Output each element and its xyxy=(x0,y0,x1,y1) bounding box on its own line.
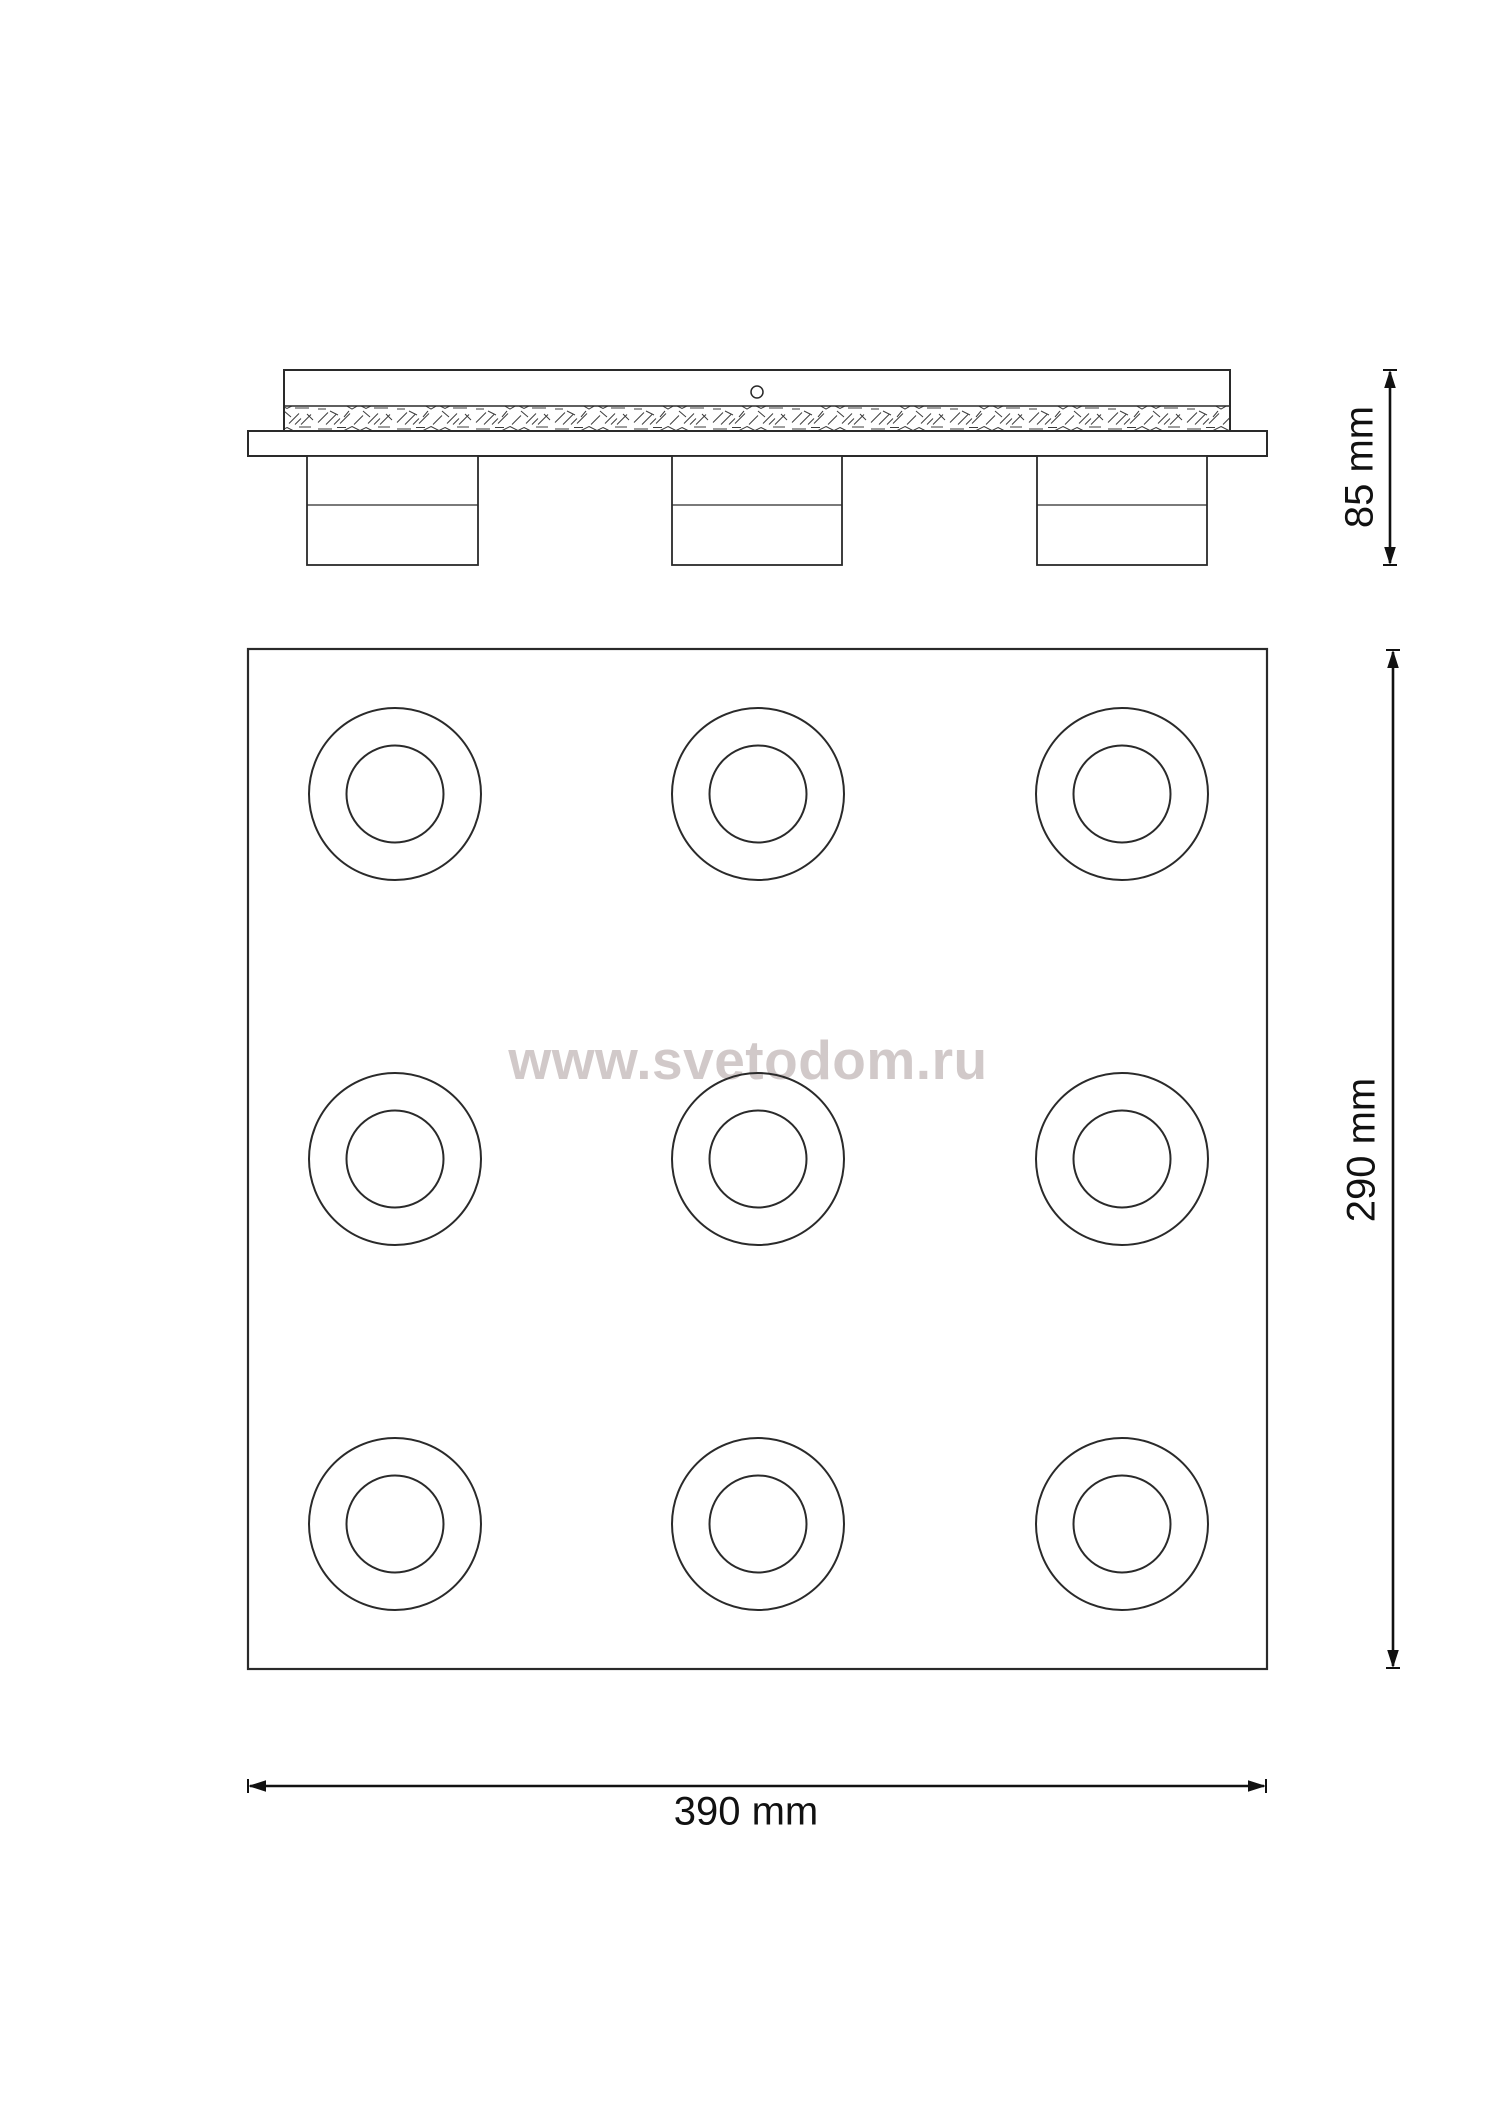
height-dimension-line xyxy=(1383,370,1397,565)
side-view xyxy=(248,370,1267,565)
lamp-ring xyxy=(672,1073,844,1245)
lamp-ring xyxy=(309,1073,481,1245)
spot-cylinder xyxy=(672,456,842,565)
width-dimension-label: 390 mm xyxy=(674,1790,819,1835)
mounting-plate xyxy=(248,431,1267,456)
drawing-page: www.svetodom.ru xyxy=(0,0,1500,2123)
depth-dimension-label: 290 mm xyxy=(1340,1078,1385,1223)
depth-dimension-line xyxy=(1386,650,1400,1668)
lamp-ring xyxy=(309,708,481,880)
glass-hatch-band xyxy=(285,407,1229,431)
lamp-ring xyxy=(672,1438,844,1610)
lamp-ring xyxy=(309,1438,481,1610)
plan-view xyxy=(248,649,1267,1669)
lamp-ring xyxy=(672,708,844,880)
plan-outline xyxy=(248,649,1267,1669)
height-dimension-label: 85 mm xyxy=(1338,406,1383,528)
spot-cylinder xyxy=(307,456,478,565)
mounting-hole-icon xyxy=(751,386,763,398)
spot-cylinder xyxy=(1037,456,1207,565)
lamp-ring xyxy=(1036,1438,1208,1610)
lamp-ring xyxy=(1036,708,1208,880)
lamp-ring xyxy=(1036,1073,1208,1245)
